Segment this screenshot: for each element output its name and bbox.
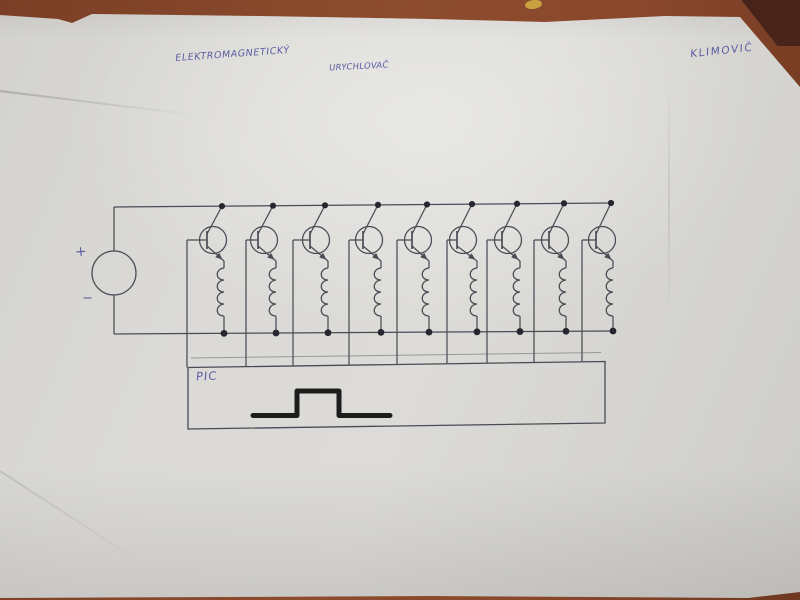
driver-stage-6 (447, 201, 480, 364)
coil-symbol (422, 268, 429, 316)
driver-stage-2 (246, 203, 279, 367)
collector-wire (258, 206, 273, 234)
source-circle (92, 251, 136, 295)
collector-wire (412, 204, 427, 234)
circuit-drawing (0, 0, 800, 600)
junction-dot-top (469, 201, 475, 207)
junction-dot-top (608, 200, 614, 206)
driver-stage-5 (397, 201, 432, 364)
pulse-waveform (253, 391, 390, 416)
coil-symbol (513, 268, 520, 316)
coil-symbol (559, 268, 566, 316)
junction-dot-bottom (563, 328, 570, 335)
voltage-source (92, 207, 136, 334)
emitter-arrow (468, 253, 475, 260)
junction-dot-bottom (517, 328, 524, 335)
junction-dot-top (424, 201, 430, 207)
junction-dot-top (322, 202, 328, 208)
junction-dot-top (219, 203, 225, 209)
junction-dot-top (561, 200, 567, 206)
junction-dot-bottom (474, 328, 481, 335)
driver-stage-1 (187, 203, 227, 367)
coil-symbol (217, 268, 224, 316)
coil-symbol (269, 268, 276, 316)
junction-dot-bottom (426, 329, 433, 336)
junction-dot-bottom (221, 330, 228, 337)
source-plus-label: + (74, 244, 87, 261)
driver-stage-4 (349, 202, 384, 365)
junction-dot-bottom (325, 329, 332, 336)
driver-stage-9 (582, 200, 616, 362)
photo-of-schematic: ELEKTROMAGNETICKÝ URYCHLOVAČ KLIMOVIČ + … (0, 0, 800, 600)
bottom-supply-rail (114, 331, 613, 334)
coil-symbol (470, 268, 477, 316)
driver-stage-7 (487, 201, 523, 364)
pic-box-ghost-stroke (191, 353, 601, 359)
collector-wire (310, 205, 325, 234)
collector-wire (207, 206, 222, 234)
collector-wire (549, 203, 564, 234)
collector-wire (502, 204, 517, 234)
top-supply-rail (114, 203, 611, 207)
junction-dot-bottom (273, 330, 280, 337)
collector-wire (363, 205, 378, 234)
driver-stage-8 (534, 200, 569, 362)
junction-dot-top (514, 201, 520, 207)
coil-symbol (321, 268, 328, 316)
driver-stage-3 (293, 202, 331, 366)
pic-controller-label: PIC (196, 369, 218, 384)
junction-dot-top (375, 202, 381, 208)
pic-box (188, 362, 605, 430)
junction-dot-bottom (610, 328, 617, 335)
collector-wire (596, 203, 611, 234)
junction-dot-bottom (378, 329, 385, 336)
junction-dot-top (270, 203, 276, 209)
coil-symbol (606, 268, 613, 316)
source-minus-label: − (82, 291, 93, 306)
collector-wire (457, 204, 472, 234)
coil-symbol (374, 268, 381, 316)
